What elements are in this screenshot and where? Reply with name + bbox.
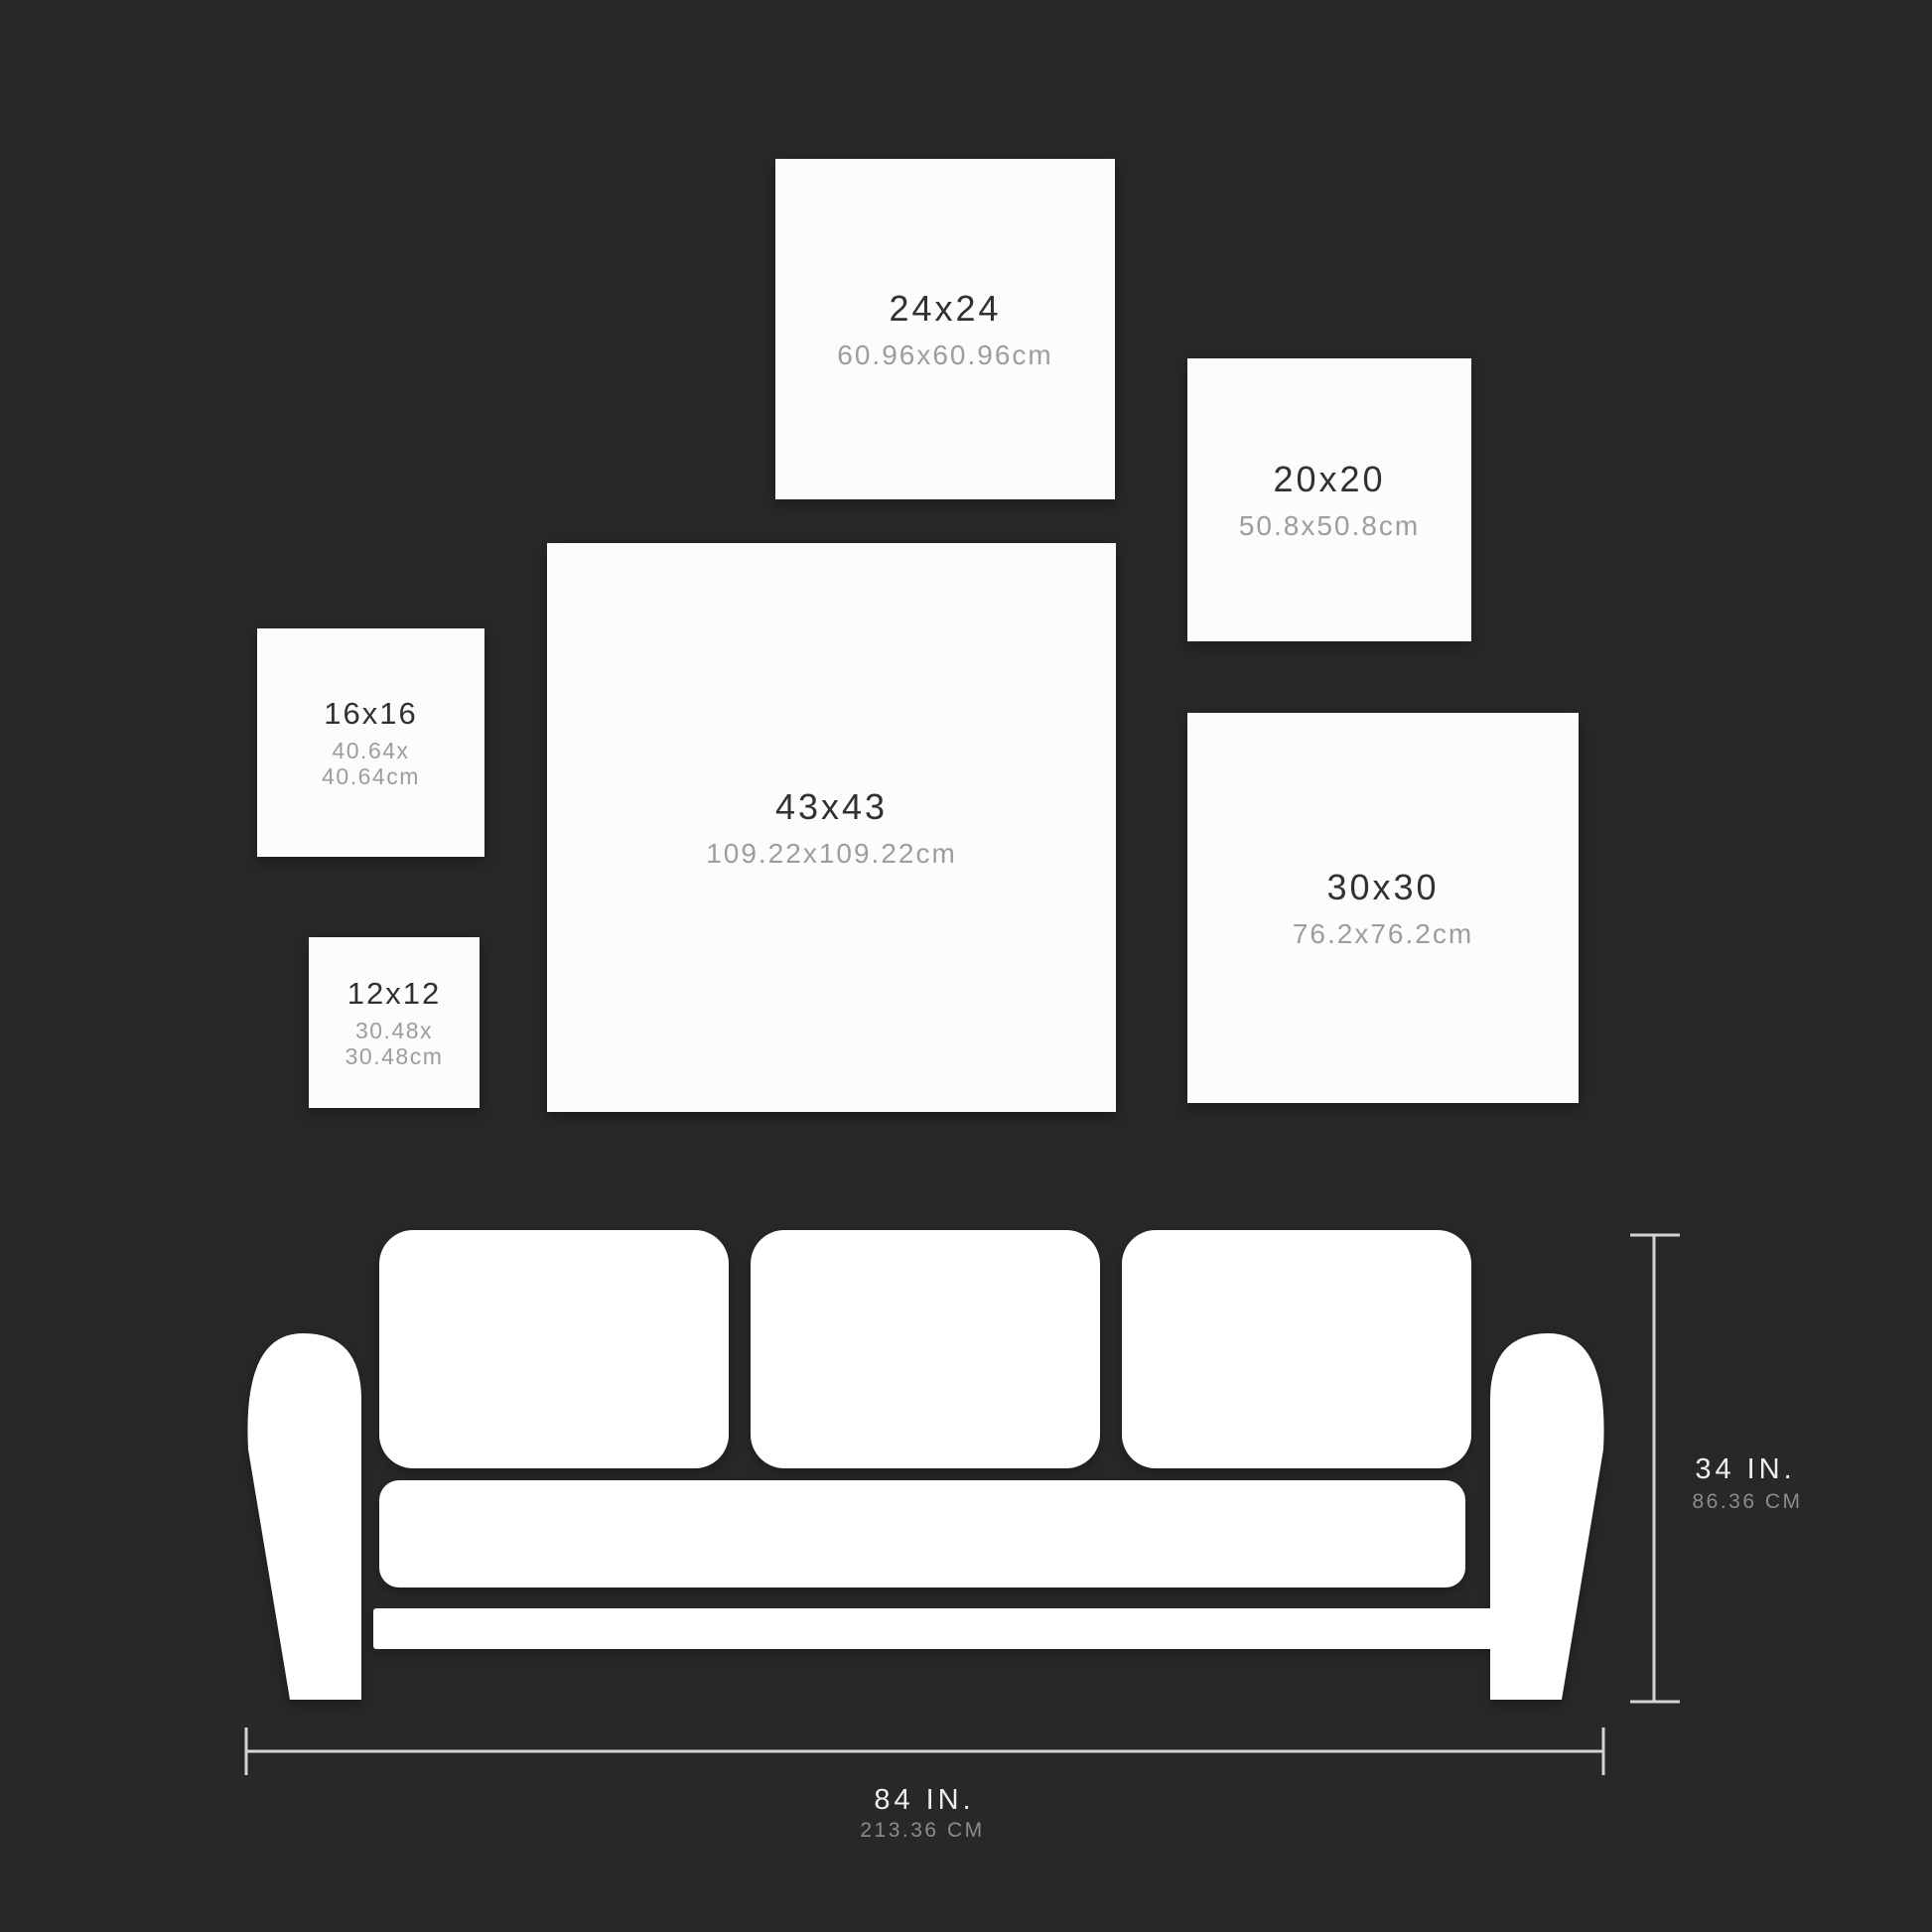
sofa-back-cushion-right — [1122, 1230, 1471, 1468]
sofa-arm-left — [247, 1333, 361, 1700]
height-cm-label: 86.36 CM — [1692, 1490, 1802, 1513]
width-cm-label: 213.36 CM — [860, 1819, 984, 1842]
sofa-silhouette — [247, 1230, 1603, 1700]
height-inches-label: 34 IN. — [1695, 1453, 1795, 1485]
sofa-arm-right — [1490, 1333, 1604, 1700]
sofa-base-rail — [373, 1608, 1495, 1649]
sofa-scale-illustration: 34 IN. 86.36 CM 84 IN. 213.36 CM — [0, 0, 1932, 1932]
size-comparison-diagram: 24x24 60.96x60.96cm 20x20 50.8x50.8cm 43… — [0, 0, 1932, 1932]
sofa-back-cushion-middle — [751, 1230, 1100, 1468]
width-inches-label: 84 IN. — [874, 1784, 974, 1816]
sofa-seat-cushion — [379, 1480, 1465, 1587]
sofa-back-cushion-left — [379, 1230, 729, 1468]
